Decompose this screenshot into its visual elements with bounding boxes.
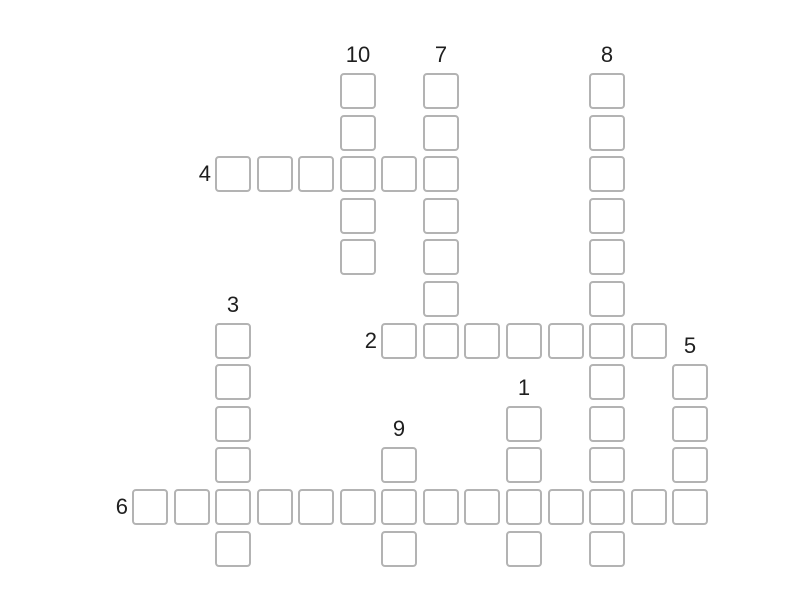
crossword-cell[interactable] — [506, 406, 542, 442]
crossword-cell[interactable] — [423, 239, 459, 275]
crossword-cell[interactable] — [132, 489, 168, 525]
clue-3-label: 3 — [215, 292, 251, 318]
crossword-cell[interactable] — [423, 198, 459, 234]
clue-5-label: 5 — [672, 333, 708, 359]
crossword-cell[interactable] — [506, 447, 542, 483]
crossword-cell[interactable] — [215, 489, 251, 525]
crossword-cell[interactable] — [215, 156, 251, 192]
crossword-cell[interactable] — [589, 489, 625, 525]
crossword-cell[interactable] — [589, 239, 625, 275]
crossword-cell[interactable] — [340, 198, 376, 234]
crossword-cell[interactable] — [381, 489, 417, 525]
crossword-cell[interactable] — [589, 281, 625, 317]
crossword-cell[interactable] — [298, 489, 334, 525]
crossword-cell[interactable] — [589, 364, 625, 400]
crossword-cell[interactable] — [464, 323, 500, 359]
clue-7-label: 7 — [423, 42, 459, 68]
clue-2-label: 2 — [341, 323, 377, 359]
crossword-cell[interactable] — [257, 156, 293, 192]
crossword-cell[interactable] — [174, 489, 210, 525]
crossword-cell[interactable] — [506, 531, 542, 567]
crossword-cell[interactable] — [589, 323, 625, 359]
crossword-cell[interactable] — [381, 447, 417, 483]
crossword-cell[interactable] — [423, 73, 459, 109]
crossword-cell[interactable] — [589, 156, 625, 192]
crossword-cell[interactable] — [589, 447, 625, 483]
crossword-cell[interactable] — [423, 115, 459, 151]
crossword-cell[interactable] — [589, 115, 625, 151]
clue-4-label: 4 — [175, 156, 211, 192]
crossword-cell[interactable] — [215, 364, 251, 400]
crossword-cell[interactable] — [423, 323, 459, 359]
crossword-cell[interactable] — [215, 447, 251, 483]
clue-10-label: 10 — [340, 42, 376, 68]
crossword-cell[interactable] — [464, 489, 500, 525]
crossword-cell[interactable] — [672, 447, 708, 483]
crossword-cell[interactable] — [215, 406, 251, 442]
clue-6-label: 6 — [92, 489, 128, 525]
crossword-cell[interactable] — [340, 73, 376, 109]
crossword-cell[interactable] — [340, 115, 376, 151]
crossword-cell[interactable] — [423, 281, 459, 317]
crossword-cell[interactable] — [340, 156, 376, 192]
crossword-cell[interactable] — [215, 323, 251, 359]
clue-9-label: 9 — [381, 416, 417, 442]
crossword-cell[interactable] — [672, 406, 708, 442]
crossword-cell[interactable] — [589, 73, 625, 109]
crossword-cell[interactable] — [257, 489, 293, 525]
crossword-cell[interactable] — [589, 406, 625, 442]
crossword-cell[interactable] — [423, 489, 459, 525]
crossword-cell[interactable] — [298, 156, 334, 192]
crossword-cell[interactable] — [631, 323, 667, 359]
crossword-cell[interactable] — [589, 531, 625, 567]
crossword-cell[interactable] — [215, 531, 251, 567]
crossword-cell[interactable] — [340, 239, 376, 275]
crossword-cell[interactable] — [423, 156, 459, 192]
crossword-cell[interactable] — [672, 489, 708, 525]
crossword-cell[interactable] — [506, 323, 542, 359]
crossword-grid: 10784235196 — [0, 0, 800, 600]
crossword-cell[interactable] — [631, 489, 667, 525]
crossword-cell[interactable] — [381, 323, 417, 359]
crossword-cell[interactable] — [340, 489, 376, 525]
crossword-cell[interactable] — [548, 489, 584, 525]
crossword-cell[interactable] — [381, 531, 417, 567]
crossword-cell[interactable] — [381, 156, 417, 192]
clue-8-label: 8 — [589, 42, 625, 68]
crossword-cell[interactable] — [589, 198, 625, 234]
crossword-cell[interactable] — [506, 489, 542, 525]
crossword-cell[interactable] — [548, 323, 584, 359]
crossword-cell[interactable] — [672, 364, 708, 400]
clue-1-label: 1 — [506, 375, 542, 401]
